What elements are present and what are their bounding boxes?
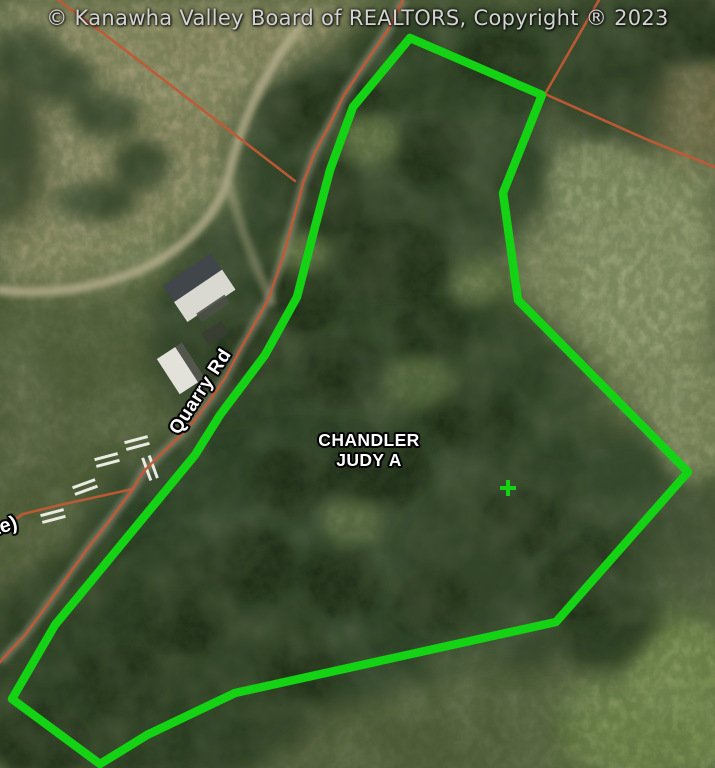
parcel-owner-label: CHANDLER JUDY A [289,431,449,470]
copyright-attribution: © Kanawha Valley Board of REALTORS, Copy… [0,6,715,30]
parcel-owner-line1: CHANDLER [289,431,449,451]
map-viewport[interactable]: © Kanawha Valley Board of REALTORS, Copy… [0,0,715,768]
parcel-owner-line2: JUDY A [289,451,449,471]
satellite-map [0,0,715,768]
terrain-imagery [0,0,715,768]
